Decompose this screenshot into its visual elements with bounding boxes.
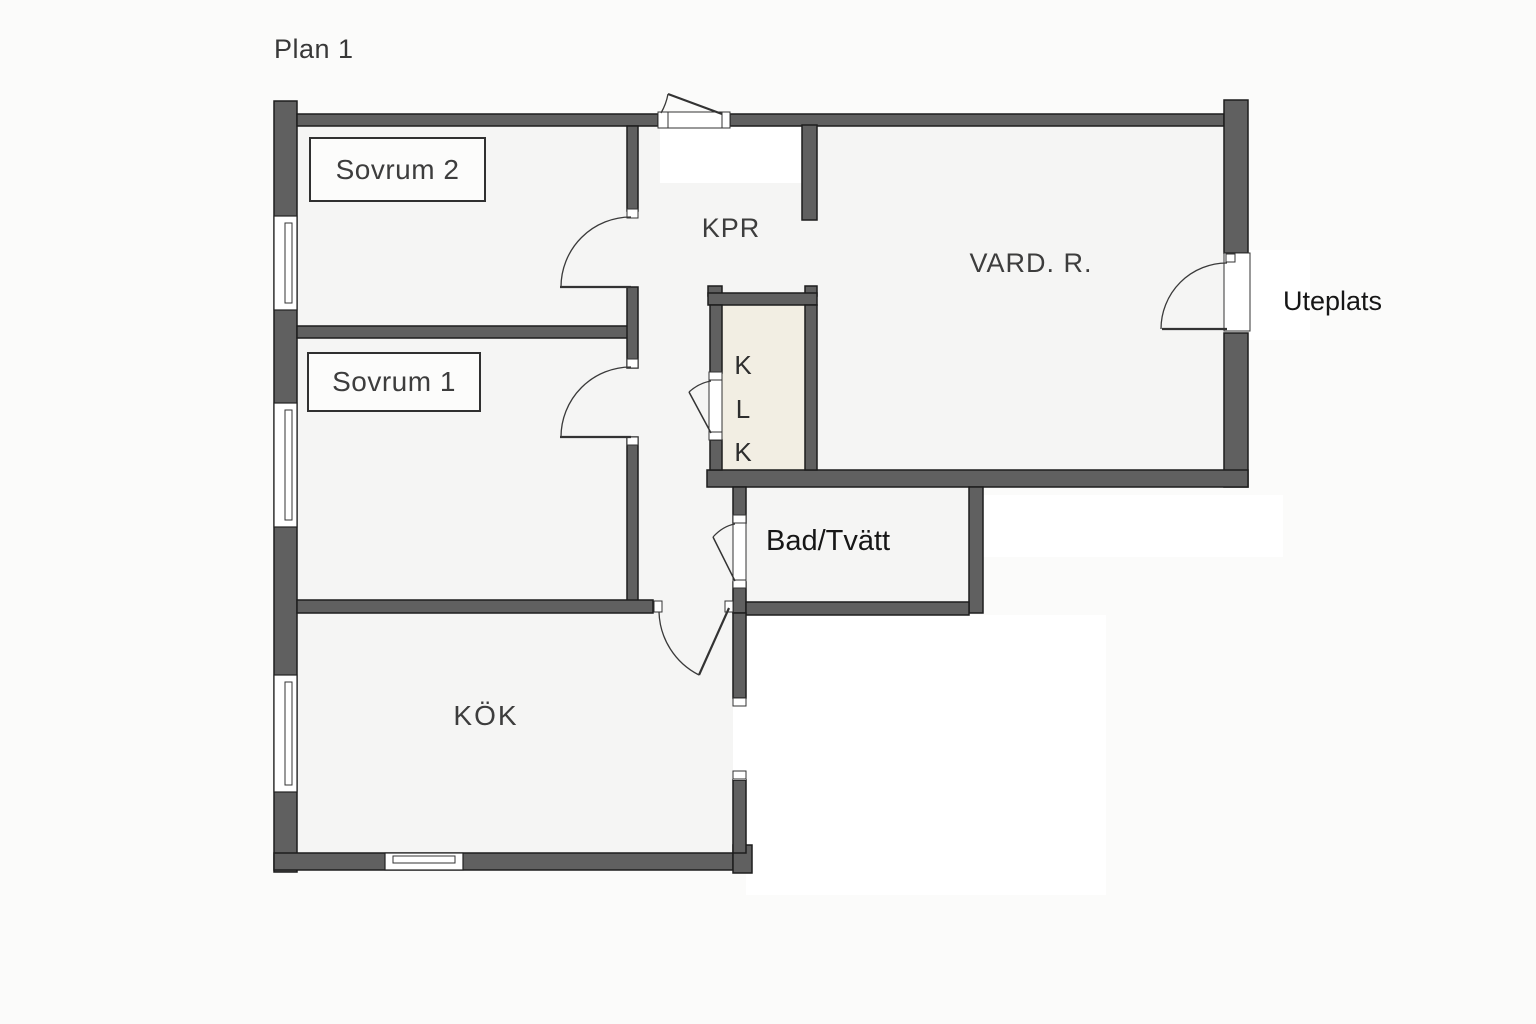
floorplan-page: Plan 1 Sovrum 2 Sovrum 1 KPR VARD. R. K … <box>0 0 1536 1024</box>
kpr-label: KPR <box>671 213 791 244</box>
klk-letter-2: L <box>727 388 759 432</box>
wall-klk-top <box>708 293 817 305</box>
wall-kok-right-upper <box>733 613 746 698</box>
opening-kok-right <box>733 698 746 780</box>
floorplan-drawing <box>0 0 1536 1024</box>
wall-top-right <box>730 114 1224 126</box>
room-label-box-sovrum1: Sovrum 1 <box>307 352 481 412</box>
wall-kpr-vard-stub <box>802 125 817 220</box>
bad-tvatt-label: Bad/Tvätt <box>766 525 890 558</box>
window-left-2 <box>274 403 297 527</box>
wall-top-left <box>297 114 658 126</box>
door-entrance <box>658 94 730 128</box>
uteplats-label: Uteplats <box>1283 286 1382 317</box>
window-left-3 <box>274 675 297 792</box>
wall-right-lower <box>1224 333 1248 487</box>
window-bottom <box>385 853 463 870</box>
vardagsrum-label: VARD. R. <box>946 248 1116 279</box>
klk-letter-1: K <box>727 344 759 388</box>
kok-label: KÖK <box>436 700 536 732</box>
klk-label: K L K <box>727 344 759 475</box>
wall-klk-left-lower <box>710 440 722 470</box>
room-label-box-sovrum2: Sovrum 2 <box>309 137 486 202</box>
wall-bottom <box>274 853 733 870</box>
wall-hall-west-upper <box>627 126 638 211</box>
klk-letter-3: K <box>727 431 759 475</box>
wall-bad-right <box>969 487 983 613</box>
window-left-1 <box>274 216 297 310</box>
wall-sovrum-divider <box>297 326 628 338</box>
wall-kok-top <box>297 600 653 613</box>
wall-kok-right-lower <box>733 780 746 853</box>
plan-title: Plan 1 <box>274 34 354 65</box>
wall-right-upper <box>1224 100 1248 253</box>
wall-hall-west-lower <box>627 437 638 605</box>
floor-kok <box>297 613 733 853</box>
floor-hall <box>627 470 746 613</box>
wall-vard-bottom <box>707 470 1248 487</box>
wall-klk-left-upper <box>710 305 722 373</box>
wall-hall-west-mid <box>627 287 638 368</box>
sovrum2-label: Sovrum 2 <box>336 154 460 186</box>
wall-klk-right <box>805 305 817 470</box>
wall-bad-bottom <box>746 602 969 615</box>
sovrum1-label: Sovrum 1 <box>332 366 456 398</box>
